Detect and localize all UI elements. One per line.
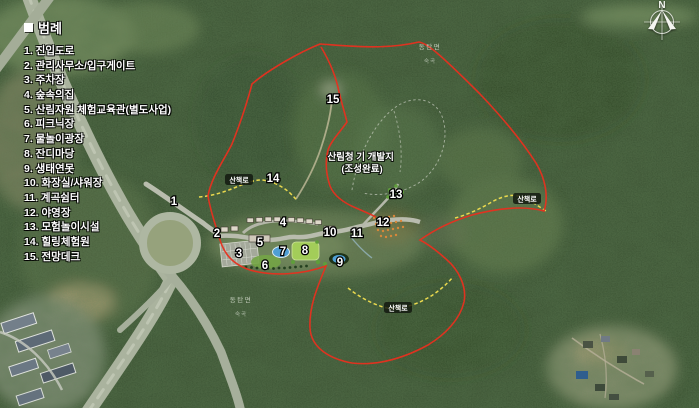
marker-14: 14 xyxy=(267,173,280,185)
legend-item-1: 1. 진입도로 xyxy=(24,44,171,59)
legend-item-7: 7. 물놀이광장 xyxy=(24,132,171,147)
legend-item-15: 15. 전망데크 xyxy=(24,250,171,265)
trail-badge-3: 산책로 xyxy=(384,302,412,313)
legend-item-2: 2. 관리사무소/입구게이트 xyxy=(24,59,171,74)
svg-text:산책로: 산책로 xyxy=(517,195,537,204)
marker-4: 4 xyxy=(280,217,287,229)
legend-item-4: 4. 숲속의집 xyxy=(24,88,171,103)
trail-badge-1: 산책로 xyxy=(225,174,253,185)
place-name-sub-2: 숙곡 xyxy=(235,310,247,318)
marker-10: 10 xyxy=(324,227,337,239)
marker-6: 6 xyxy=(262,260,268,272)
legend-items: 1. 진입도로2. 관리사무소/입구게이트3. 주차장4. 숲속의집5. 산림자… xyxy=(24,44,171,264)
marker-3: 3 xyxy=(236,248,242,260)
legend-item-5: 5. 산림자원 체험교육관(별도사업) xyxy=(24,103,171,118)
legend-item-11: 11. 계곡쉼터 xyxy=(24,191,171,206)
legend-item-6: 6. 피크닉장 xyxy=(24,117,171,132)
marker-1: 1 xyxy=(171,196,178,208)
svg-text:산책로: 산책로 xyxy=(388,304,408,313)
marker-11: 11 xyxy=(351,228,364,240)
legend-title-text: 범례 xyxy=(38,18,62,37)
legend-title: 범례 xyxy=(24,18,171,37)
marker-9: 9 xyxy=(337,257,343,269)
legend-item-3: 3. 주차장 xyxy=(24,73,171,88)
legend: 범례 1. 진입도로2. 관리사무소/입구게이트3. 주차장4. 숲속의집5. … xyxy=(24,18,171,264)
compass-rose-icon xyxy=(641,1,683,43)
marker-2: 2 xyxy=(214,228,220,240)
compass: N xyxy=(641,1,683,11)
place-name-sub-1: 숙곡 xyxy=(424,57,436,65)
svg-text:산책로: 산책로 xyxy=(229,176,249,185)
marker-12: 12 xyxy=(377,217,390,229)
site-plan-map: 산림청 기 개발지 (조성완료) 동탄면숙곡동탄면숙곡 산책로산책로산책로 12… xyxy=(0,0,699,408)
trail-badge-2: 산책로 xyxy=(513,193,541,204)
marker-13: 13 xyxy=(390,189,403,201)
place-name-1: 동탄면 xyxy=(419,42,441,51)
legend-item-14: 14. 힐링체험원 xyxy=(24,235,171,250)
marker-7: 7 xyxy=(280,246,286,258)
marker-5: 5 xyxy=(257,237,264,249)
legend-bullet-square xyxy=(24,23,33,32)
marker-8: 8 xyxy=(302,245,309,257)
legend-item-12: 12. 야영장 xyxy=(24,206,171,221)
place-name-2: 동탄면 xyxy=(230,295,252,304)
legend-item-8: 8. 잔디마당 xyxy=(24,147,171,162)
legend-item-13: 13. 모험놀이시설 xyxy=(24,220,171,235)
legend-item-10: 10. 화장실/샤워장 xyxy=(24,176,171,191)
legend-item-9: 9. 생태연못 xyxy=(24,162,171,177)
marker-15: 15 xyxy=(327,94,340,106)
